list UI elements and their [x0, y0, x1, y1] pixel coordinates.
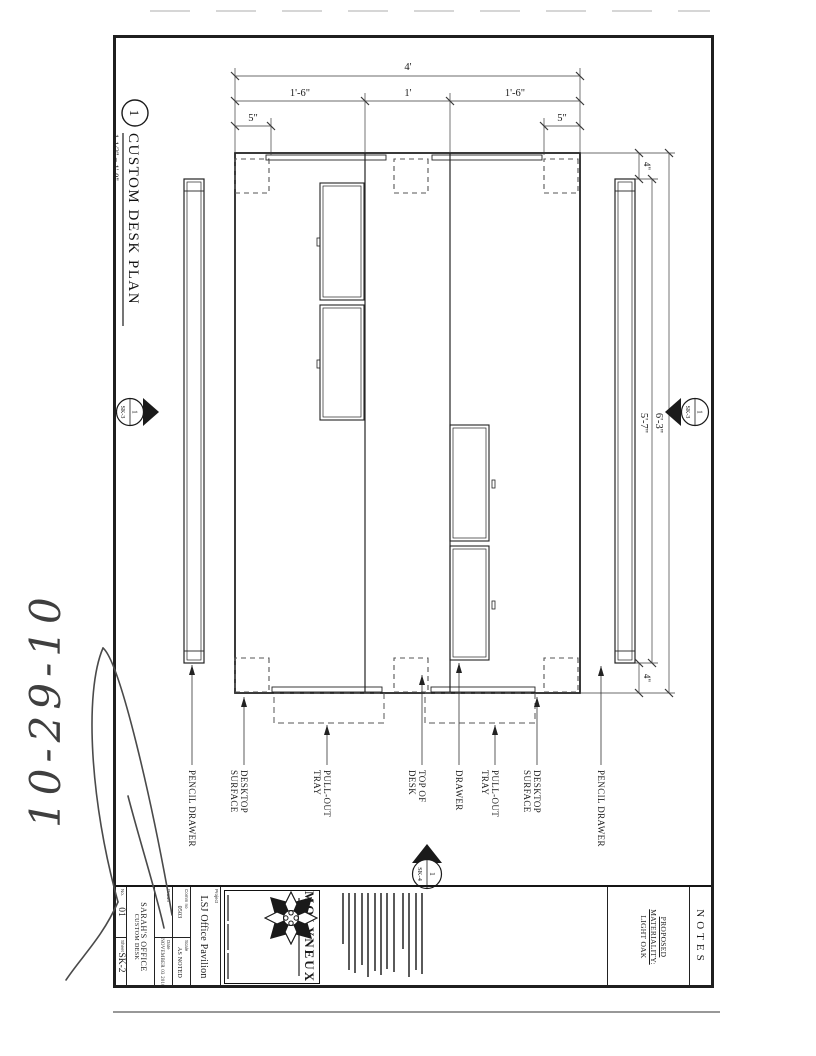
label-tray-2a: PULL-OUT — [490, 770, 500, 817]
label-top-of-desk-a: TOP OF — [417, 770, 427, 803]
marker-top-num: 1 — [696, 410, 704, 414]
notes-header: NOTES — [689, 887, 711, 987]
date-label: Date — [166, 940, 171, 950]
dim-offset-top: 5" — [557, 113, 567, 124]
revision-label: No. — [120, 889, 125, 896]
dim-seg-2: 1' — [404, 88, 411, 99]
sheet-no-cell: Sheet SK-2 — [116, 937, 126, 987]
comm-no-cell: Comm no 0503 — [173, 887, 190, 937]
desk-outline — [235, 153, 580, 693]
part-labels: PENCIL DRAWER DESKTOP SURFACE PULL-OUT T… — [187, 770, 606, 847]
firm-logo-block: MOLYNEUX — [221, 887, 321, 987]
label-pencil-drawer-2: PENCIL DRAWER — [596, 770, 606, 847]
comm-no-label: Comm no — [184, 889, 189, 909]
dim-width-overall: 6'-3" — [653, 413, 664, 433]
desk-edge-trim — [266, 155, 542, 692]
drawer-bank-lower — [317, 183, 364, 420]
fields-row-1: Comm no 0503 Scale AS NOTED — [173, 887, 191, 987]
dim-end-left: 4" — [642, 162, 652, 171]
section-marker-right: 1 SK-4 — [412, 844, 442, 889]
dim-seg-1: 1'-6" — [505, 88, 525, 99]
section-marker-top: 1 SK-3 — [665, 398, 709, 426]
sheet-title-line1: SARAH'S OFFICE — [139, 887, 154, 987]
dim-drawer-span: 5'-7" — [638, 413, 649, 433]
label-pencil-drawer-1: PENCIL DRAWER — [187, 770, 197, 847]
label-tray-2b: TRAY — [480, 770, 490, 795]
handwritten-date: 10-29-10 — [21, 591, 70, 828]
dim-offset-bottom: 5" — [248, 113, 258, 124]
materiality-line3: LIGHT OAK — [638, 887, 648, 987]
marker-bottom-sheet: SK-3 — [119, 406, 125, 419]
pullout-trays-dashed — [274, 693, 535, 723]
project-cell: Project LSJ Office Pavilion — [191, 887, 221, 987]
marker-right-sheet: SK-4 — [416, 867, 423, 881]
drawer-bank-upper — [450, 425, 495, 660]
date-cell: Date NOVEMBER 03 2010 — [155, 937, 172, 987]
materiality-line2: MATERIALITY: — [648, 887, 658, 987]
label-tray-1a: PULL-OUT — [322, 770, 332, 817]
label-tray-1b: TRAY — [312, 770, 322, 795]
compass-star-logo — [264, 891, 318, 945]
scale-cell: Scale AS NOTED — [173, 937, 190, 987]
sheet-number-row: No. 01 Sheet SK-2 — [116, 887, 127, 987]
dim-seg-3: 1'-6" — [290, 88, 310, 99]
firm-contact-line — [227, 895, 229, 980]
leg-blocks-dashed — [235, 159, 578, 692]
disclaimer-fine-print — [323, 887, 423, 987]
scanned-sheet-page: 4' 1'-6" 1' 1'-6" 5" 5" 6'-3" 5'-7" 4" 4… — [0, 0, 816, 1056]
fields-row-2: Drawn Date NOVEMBER 03 2010 — [155, 887, 173, 987]
label-top-of-desk-b: DESK — [407, 770, 417, 795]
label-desktop-1a: DESKTOP — [239, 770, 249, 813]
label-desktop-2b: SURFACE — [522, 770, 532, 813]
pencil-drawer-bottom — [184, 179, 204, 663]
drawing-scale: 1-1/2" = 1'-0" — [116, 134, 121, 181]
drawing-title-block: 1 CUSTOM DESK PLAN 1-1/2" = 1'-0" — [116, 100, 148, 326]
materiality-note: PROPOSED MATERIALITY: LIGHT OAK — [607, 887, 688, 987]
revision-cell: No. 01 — [116, 887, 126, 937]
drawn-label: Drawn — [166, 889, 171, 902]
marker-top-sheet: SK-3 — [684, 406, 690, 419]
desk-plan-drawing: 4' 1'-6" 1' 1'-6" 5" 5" 6'-3" 5'-7" 4" 4… — [116, 38, 711, 985]
pencil-drawer-top — [615, 179, 635, 663]
dim-depth-overall: 4' — [404, 62, 411, 73]
label-desktop-2a: DESKTOP — [532, 770, 542, 813]
dimension-lines-left — [231, 68, 584, 155]
marker-bottom-num: 1 — [131, 410, 139, 414]
label-leaders — [192, 663, 601, 765]
detail-bubble-number: 1 — [127, 110, 142, 117]
title-block: NOTES PROPOSED MATERIALITY: LIGHT OAK MO… — [116, 885, 711, 987]
leader-arrowheads — [189, 663, 604, 735]
materiality-line1: PROPOSED — [658, 887, 668, 987]
label-desktop-1b: SURFACE — [229, 770, 239, 813]
marker-right-num: 1 — [428, 872, 437, 876]
sheet-no-label: Sheet — [120, 940, 125, 952]
section-marker-bottom: 1 SK-3 — [117, 398, 160, 426]
drawing-sheet: 4' 1'-6" 1' 1'-6" 5" 5" 6'-3" 5'-7" 4" 4… — [113, 35, 714, 988]
label-drawer: DRAWER — [454, 770, 464, 811]
drawn-cell: Drawn — [155, 887, 172, 937]
dim-end-right: 4" — [642, 674, 652, 683]
sheet-title-cell: SARAH'S OFFICE CUSTOM DESK — [127, 887, 155, 987]
project-label: Project — [214, 889, 219, 903]
scale-label: Scale — [184, 940, 189, 951]
drawing-title: CUSTOM DESK PLAN — [125, 133, 141, 305]
